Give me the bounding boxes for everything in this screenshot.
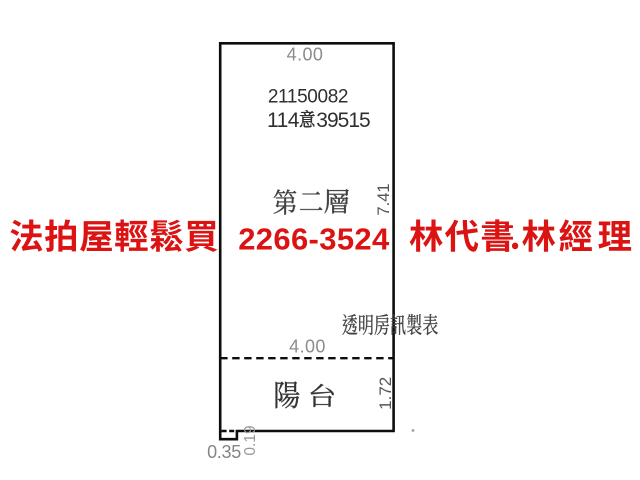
svg-text:21150082: 21150082 xyxy=(268,87,348,108)
svg-text:0.35: 0.35 xyxy=(207,442,241,462)
svg-text:4.00: 4.00 xyxy=(287,44,324,64)
svg-text:114: 114 xyxy=(267,109,300,132)
svg-text:4.00: 4.00 xyxy=(289,336,326,356)
svg-text:0.19: 0.19 xyxy=(242,425,259,455)
svg-text:39515: 39515 xyxy=(316,109,370,132)
svg-text:2266-3524: 2266-3524 xyxy=(238,221,390,256)
svg-text:7.41: 7.41 xyxy=(375,183,393,215)
svg-text:1.72: 1.72 xyxy=(376,377,395,410)
